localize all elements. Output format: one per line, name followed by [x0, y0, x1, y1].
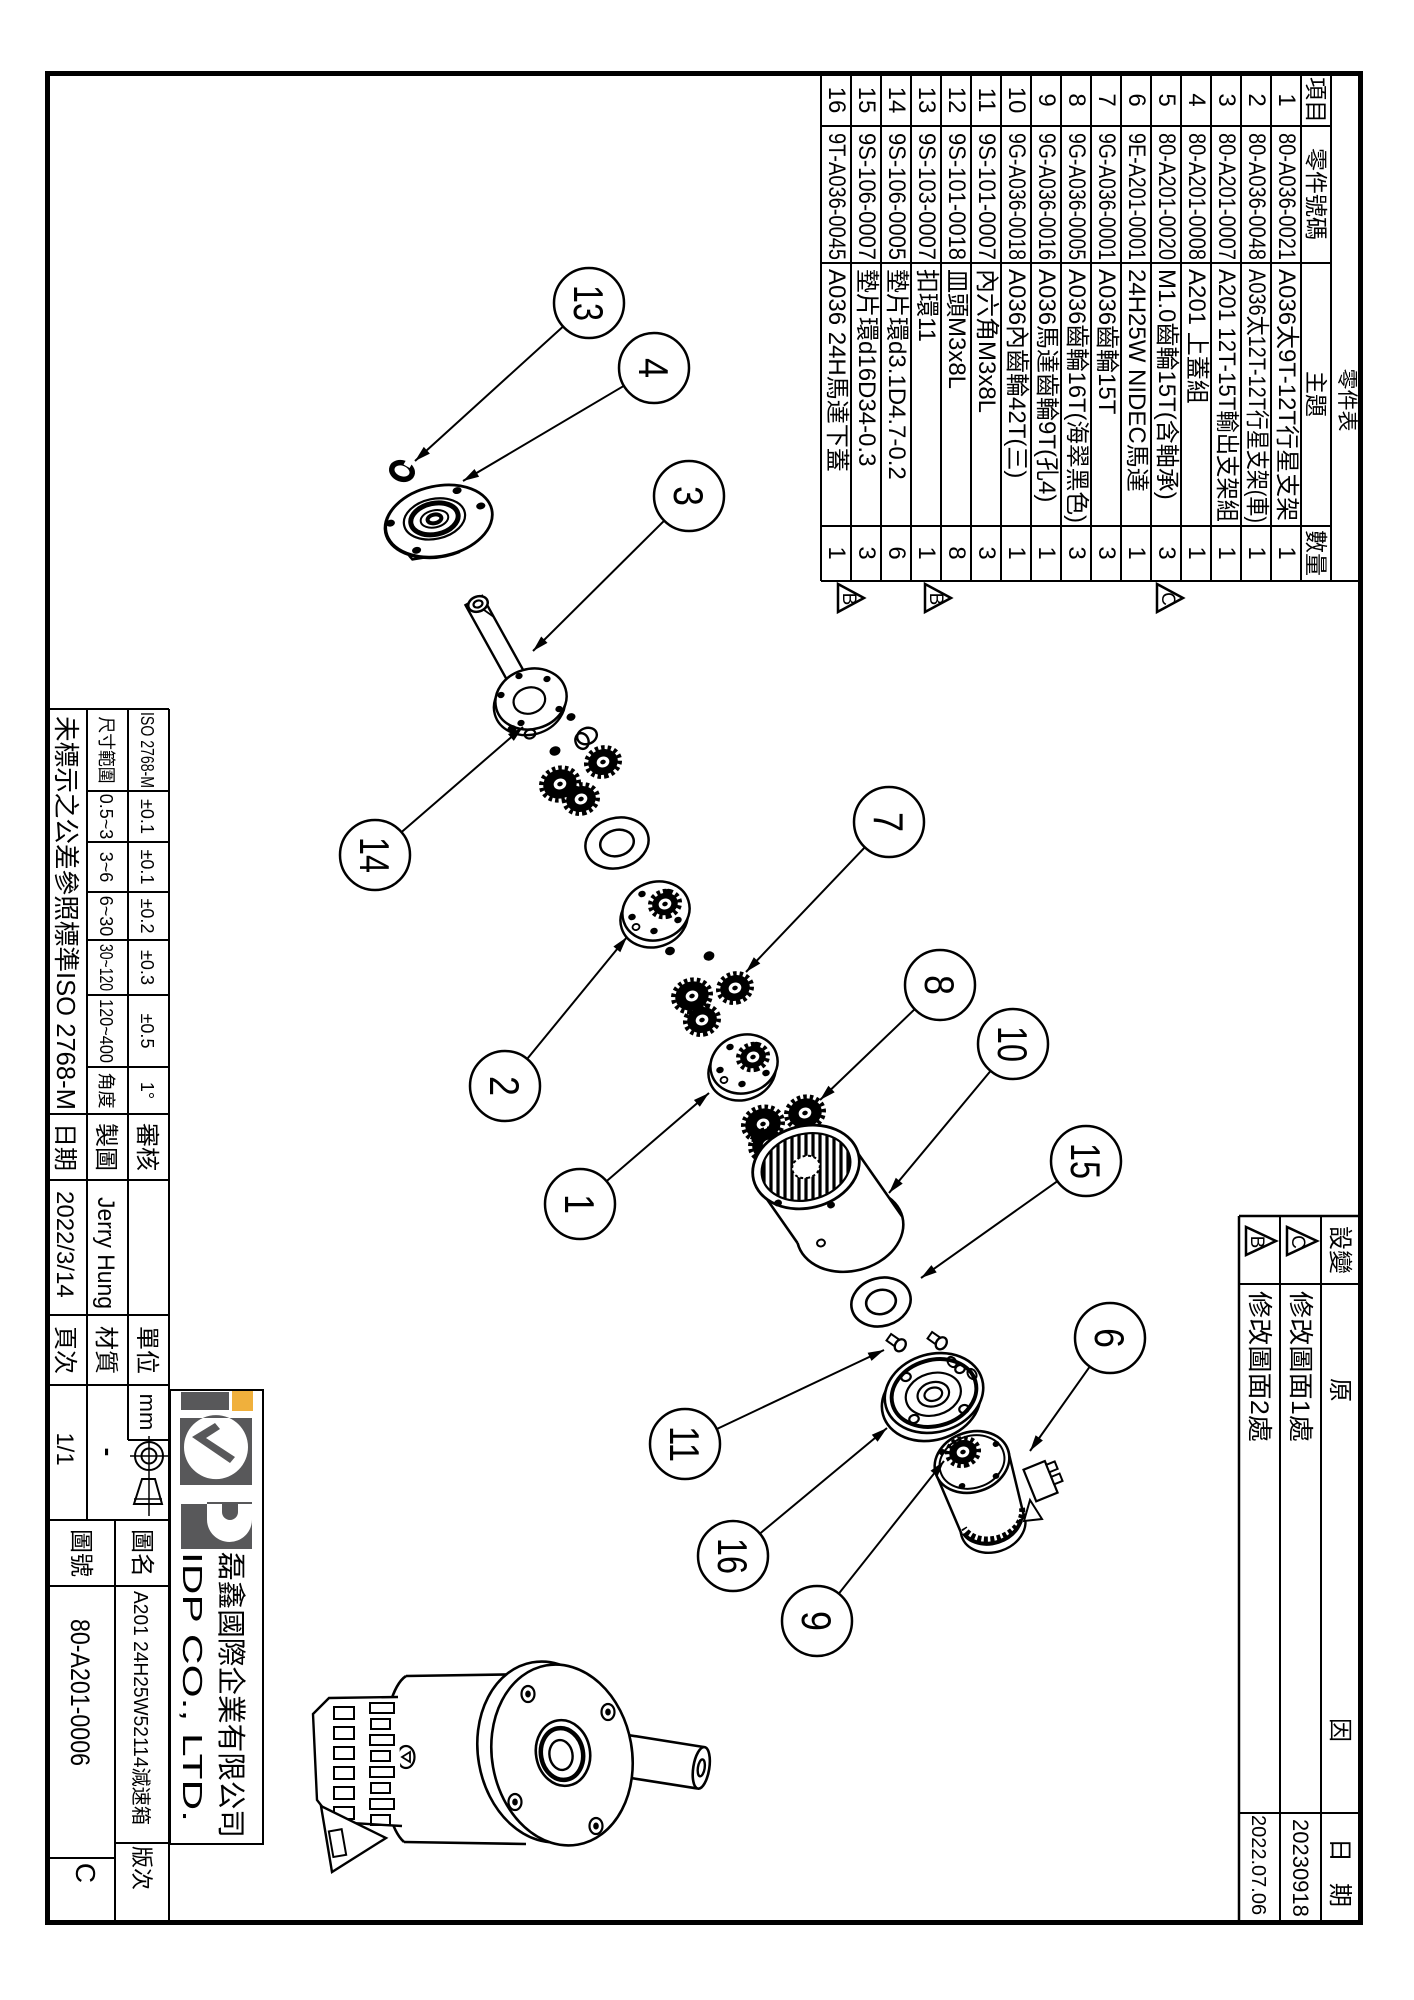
svg-text:±0.2: ±0.2: [137, 899, 157, 934]
svg-text:9S-101-0018: 9S-101-0018: [943, 133, 970, 260]
svg-text:5: 5: [1153, 93, 1180, 106]
svg-text:20230918: 20230918: [1288, 1819, 1313, 1917]
svg-text:15: 15: [1062, 1143, 1109, 1179]
svg-text:墊片環d3.1D4.7-0.2: 墊片環d3.1D4.7-0.2: [883, 269, 910, 480]
svg-text:磊鑫國際企業有限公司: 磊鑫國際企業有限公司: [214, 1552, 247, 1838]
svg-text:A036 24H馬達下蓋: A036 24H馬達下蓋: [823, 269, 850, 472]
svg-text:4: 4: [630, 358, 677, 378]
svg-text:3~6: 3~6: [96, 852, 116, 883]
svg-text:7: 7: [1093, 93, 1120, 106]
svg-text:±0.5: ±0.5: [137, 1014, 157, 1049]
svg-text:9G-A036-0005: 9G-A036-0005: [1063, 133, 1090, 260]
svg-text:3: 3: [1153, 546, 1180, 559]
svg-text:A036齒輪15T: A036齒輪15T: [1093, 269, 1120, 415]
svg-text:修改圖面2處: 修改圖面2處: [1245, 1291, 1273, 1442]
svg-text:120~400: 120~400: [96, 999, 116, 1063]
svg-text:A036太12T-12T行星支架(車): A036太12T-12T行星支架(車): [1243, 269, 1270, 523]
svg-text:A201 24H25W52114減速箱: A201 24H25W52114減速箱: [129, 1591, 152, 1825]
svg-text:6: 6: [1086, 1328, 1133, 1348]
svg-text:2: 2: [1243, 93, 1270, 106]
svg-text:C: C: [1287, 1235, 1308, 1249]
svg-text:ISO 2768-M: ISO 2768-M: [137, 712, 157, 788]
svg-text:尺寸範圍: 尺寸範圍: [96, 717, 116, 784]
svg-text:9S-103-0007: 9S-103-0007: [913, 133, 940, 260]
svg-text:扣環11: 扣環11: [913, 269, 940, 342]
svg-text:4: 4: [1183, 93, 1210, 106]
svg-text:24H25W NIDEC馬達: 24H25W NIDEC馬達: [1123, 269, 1150, 492]
svg-text:M1.0齒輪15T(含軸承): M1.0齒輪15T(含軸承): [1153, 269, 1180, 500]
svg-text:14: 14: [883, 87, 910, 114]
svg-text:16: 16: [823, 87, 850, 114]
svg-text:10: 10: [989, 1026, 1036, 1062]
svg-text:單位: 單位: [133, 1326, 160, 1374]
svg-text:數量: 數量: [1303, 530, 1329, 576]
svg-text:A201 上蓋組: A201 上蓋組: [1183, 269, 1210, 404]
svg-text:13: 13: [565, 285, 612, 321]
svg-text:設變: 設變: [1326, 1226, 1353, 1274]
svg-text:材質: 材質: [92, 1326, 119, 1374]
svg-text:15: 15: [853, 87, 880, 114]
svg-text:A036太9T-12T行星支架: A036太9T-12T行星支架: [1273, 269, 1300, 521]
svg-text:9S-106-0005: 9S-106-0005: [883, 133, 910, 260]
svg-text:80-A036-0021: 80-A036-0021: [1273, 133, 1300, 260]
svg-text:A036內齒輪42T(三): A036內齒輪42T(三): [1003, 269, 1030, 478]
svg-text:9: 9: [793, 1611, 840, 1631]
svg-text:3: 3: [1213, 93, 1240, 106]
svg-text:3: 3: [665, 486, 712, 506]
svg-text:圖號: 圖號: [67, 1529, 94, 1577]
svg-text:1: 1: [1003, 546, 1030, 559]
svg-text:±0.3: ±0.3: [137, 950, 157, 985]
svg-text:9T-A036-0045: 9T-A036-0045: [823, 133, 850, 260]
svg-text:13: 13: [913, 87, 940, 114]
svg-text:±0.1: ±0.1: [137, 799, 157, 834]
svg-text:3: 3: [973, 546, 1000, 559]
svg-text:80-A201-0007: 80-A201-0007: [1213, 133, 1240, 260]
svg-text:A036馬達齒輪9T(孔4): A036馬達齒輪9T(孔4): [1033, 269, 1060, 502]
svg-text:墊片環d16D34-0.3: 墊片環d16D34-0.3: [853, 269, 880, 466]
svg-text:IDP CO., LTD.: IDP CO., LTD.: [177, 1552, 208, 1822]
svg-text:30~120: 30~120: [96, 944, 116, 991]
svg-text:11: 11: [661, 1426, 708, 1462]
svg-text:原: 原: [1326, 1378, 1353, 1402]
svg-text:9G-A036-0018: 9G-A036-0018: [1003, 133, 1030, 260]
svg-text:2022.07.06: 2022.07.06: [1247, 1815, 1269, 1915]
svg-text:因: 因: [1326, 1718, 1353, 1742]
svg-text:審核: 審核: [133, 1123, 160, 1171]
svg-text:10: 10: [1003, 87, 1030, 114]
svg-text:B: B: [1246, 1236, 1267, 1249]
svg-text:C: C: [1157, 592, 1178, 606]
svg-text:B: B: [838, 593, 859, 606]
svg-text:9: 9: [1033, 93, 1060, 106]
svg-text:未標示之公差參照標準ISO 2768-M: 未標示之公差參照標準ISO 2768-M: [51, 716, 81, 1110]
svg-text:12: 12: [943, 87, 970, 114]
svg-text:1: 1: [913, 546, 940, 559]
svg-text:修改圖面1處: 修改圖面1處: [1286, 1291, 1314, 1442]
svg-text:主題: 主題: [1303, 371, 1329, 417]
svg-text:日期: 日期: [51, 1123, 78, 1171]
svg-text:9G-A036-0016: 9G-A036-0016: [1033, 133, 1060, 260]
svg-text:3: 3: [853, 546, 880, 559]
svg-text:1: 1: [823, 546, 850, 559]
svg-text:零件號碼: 零件號碼: [1303, 148, 1329, 240]
svg-text:8: 8: [1063, 93, 1090, 106]
svg-text:11: 11: [973, 88, 1000, 113]
svg-text:9S-106-0007: 9S-106-0007: [853, 133, 880, 260]
svg-text:1: 1: [1273, 93, 1300, 106]
svg-text:80-A036-0048: 80-A036-0048: [1243, 133, 1270, 260]
svg-text:8: 8: [943, 546, 970, 559]
svg-text:80-A201-0008: 80-A201-0008: [1183, 133, 1210, 260]
svg-text:1: 1: [556, 1194, 603, 1214]
svg-text:零件表: 零件表: [1335, 369, 1358, 432]
svg-text:1: 1: [1213, 546, 1240, 559]
svg-text:9E-A201-0001: 9E-A201-0001: [1123, 133, 1150, 260]
svg-text:2022/3/14: 2022/3/14: [51, 1191, 78, 1298]
svg-text:1°: 1°: [137, 1082, 157, 1099]
svg-text:0.5~3: 0.5~3: [96, 794, 116, 840]
svg-text:1: 1: [1033, 546, 1060, 559]
svg-text:6: 6: [1123, 93, 1150, 106]
svg-text:6: 6: [883, 546, 910, 559]
svg-text:16: 16: [709, 1538, 756, 1574]
svg-text:80-A201-0020: 80-A201-0020: [1153, 133, 1180, 260]
svg-text:製圖: 製圖: [92, 1123, 119, 1171]
svg-text:9G-A036-0001: 9G-A036-0001: [1093, 133, 1120, 260]
svg-text:80-A201-0006: 80-A201-0006: [65, 1619, 95, 1766]
svg-text:7: 7: [865, 812, 912, 832]
svg-text:1/1: 1/1: [51, 1432, 78, 1465]
svg-text:期: 期: [1326, 1883, 1353, 1907]
svg-text:2: 2: [481, 1076, 528, 1096]
svg-text:皿頭M3x8L: 皿頭M3x8L: [943, 269, 970, 389]
svg-text:3: 3: [1093, 546, 1120, 559]
svg-text:-: -: [94, 1448, 124, 1457]
svg-text:角度: 角度: [96, 1073, 116, 1109]
svg-text:圖名: 圖名: [128, 1529, 155, 1577]
svg-text:B: B: [925, 593, 946, 606]
svg-text:6~30: 6~30: [96, 896, 116, 937]
svg-text:C: C: [70, 1863, 101, 1883]
svg-text:內六角M3x8L: 內六角M3x8L: [973, 269, 1000, 413]
svg-text:日: 日: [1326, 1838, 1353, 1862]
svg-text:1: 1: [1123, 546, 1150, 559]
svg-text:14: 14: [351, 837, 398, 873]
svg-text:A036齒輪16T(海翠黑色): A036齒輪16T(海翠黑色): [1063, 269, 1090, 523]
svg-text:版次: 版次: [129, 1846, 154, 1890]
svg-text:9S-101-0007: 9S-101-0007: [973, 133, 1000, 260]
svg-text:8: 8: [916, 975, 963, 995]
svg-text:1: 1: [1183, 546, 1210, 559]
svg-text:1: 1: [1243, 546, 1270, 559]
svg-text:3: 3: [1063, 546, 1090, 559]
svg-text:1: 1: [1273, 546, 1300, 559]
svg-text:±0.1: ±0.1: [137, 850, 157, 885]
svg-text:mm: mm: [135, 1394, 160, 1431]
svg-text:A201 12T-15T輸出支架組: A201 12T-15T輸出支架組: [1213, 269, 1240, 522]
svg-text:項目: 項目: [1303, 77, 1329, 123]
svg-text:頁次: 頁次: [51, 1326, 78, 1374]
svg-text:Jerry Hung: Jerry Hung: [92, 1197, 119, 1309]
